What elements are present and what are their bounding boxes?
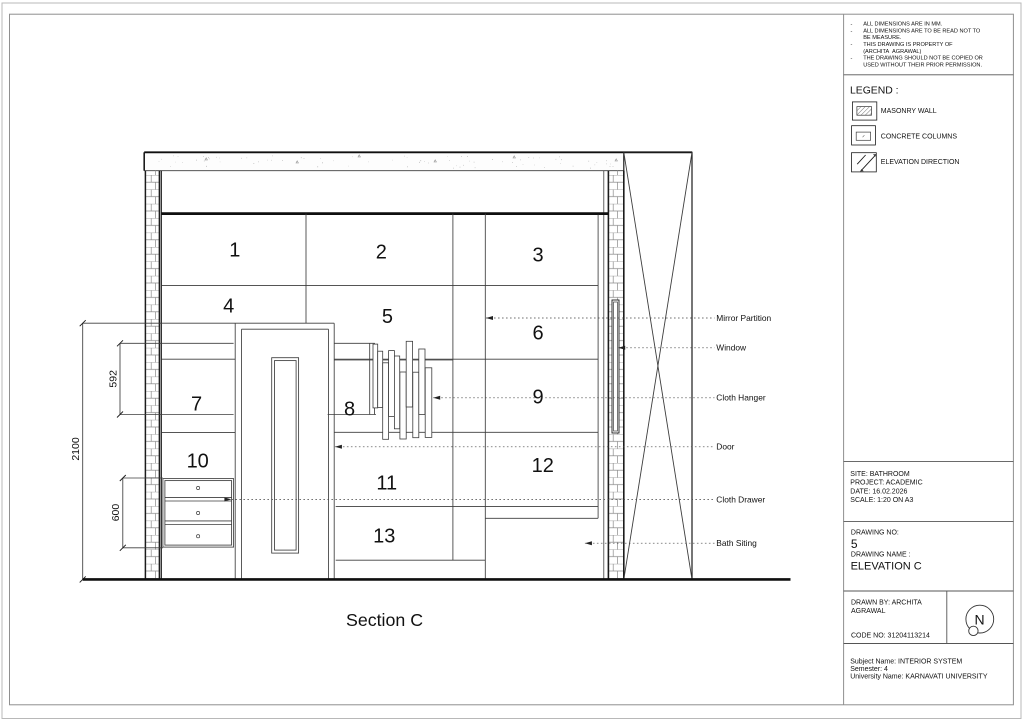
svg-text:DRAWING NO:: DRAWING NO: xyxy=(851,530,899,537)
svg-text:-: - xyxy=(851,21,853,27)
svg-text:CONCRETE COLUMNS: CONCRETE COLUMNS xyxy=(881,133,958,140)
svg-text:10: 10 xyxy=(187,451,209,473)
svg-text:13: 13 xyxy=(373,526,395,548)
svg-text:THIS DRAWING IS PROPERTY OF: THIS DRAWING IS PROPERTY OF xyxy=(863,42,953,48)
svg-text:ALL DIMENSIONS ARE IN MM.: ALL DIMENSIONS ARE IN MM. xyxy=(863,21,942,27)
svg-text:Section C: Section C xyxy=(346,610,423,630)
svg-text:-: - xyxy=(851,28,853,34)
svg-text:DRAWING NAME :: DRAWING NAME : xyxy=(851,551,911,558)
svg-text:-: - xyxy=(851,56,853,62)
svg-text:ALL DIMENSIONS ARE TO BE READ: ALL DIMENSIONS ARE TO BE READ NOT TO xyxy=(863,28,981,34)
svg-text:600: 600 xyxy=(110,504,122,522)
svg-text:Cloth Drawer: Cloth Drawer xyxy=(716,494,765,504)
svg-text:USED WITHOUT THEIR PRIOR PERMI: USED WITHOUT THEIR PRIOR PERMISSION. xyxy=(863,63,982,69)
svg-text:(ARCHITA AGRAWAL): (ARCHITA AGRAWAL) xyxy=(863,49,921,55)
svg-text:3: 3 xyxy=(533,244,544,266)
svg-text:5: 5 xyxy=(382,306,393,328)
svg-text:BE MEASURE.: BE MEASURE. xyxy=(863,35,902,41)
svg-text:Mirror Partition: Mirror Partition xyxy=(716,313,771,323)
svg-text:6: 6 xyxy=(533,323,544,345)
svg-text:CODE NO: 31204113214: CODE NO: 31204113214 xyxy=(851,633,930,640)
svg-text:N: N xyxy=(975,611,985,627)
svg-text:LEGEND :: LEGEND : xyxy=(850,86,899,97)
svg-text:1: 1 xyxy=(229,240,240,262)
svg-text:-: - xyxy=(851,42,853,48)
svg-text:7: 7 xyxy=(191,394,202,416)
svg-text:Bath Siting: Bath Siting xyxy=(716,538,757,548)
svg-text:2: 2 xyxy=(376,242,387,264)
svg-text:Door: Door xyxy=(716,442,734,452)
svg-text:8: 8 xyxy=(344,399,355,421)
svg-text:12: 12 xyxy=(532,455,554,477)
svg-text:Cloth Hanger: Cloth Hanger xyxy=(716,393,766,403)
svg-text:DATE: 16.02.2026: DATE: 16.02.2026 xyxy=(850,488,907,495)
svg-text:SITE: BATHROOM: SITE: BATHROOM xyxy=(850,471,910,478)
svg-text:Semester: 4: Semester: 4 xyxy=(850,666,888,673)
svg-text:4: 4 xyxy=(223,295,234,317)
svg-text:Window: Window xyxy=(716,343,747,353)
svg-text:592: 592 xyxy=(107,370,119,388)
svg-text:2100: 2100 xyxy=(70,437,82,461)
svg-text:AGRAWAL: AGRAWAL xyxy=(851,608,886,615)
svg-text:ELEVATION DIRECTION: ELEVATION DIRECTION xyxy=(881,159,960,166)
svg-text:PROJECT: ACADEMIC: PROJECT: ACADEMIC xyxy=(850,480,922,487)
svg-text:MASONRY WALL: MASONRY WALL xyxy=(881,108,937,115)
svg-text:THE DRAWING SHOULD NOT BE COPI: THE DRAWING SHOULD NOT BE COPIED OR xyxy=(863,56,983,62)
svg-text:University Name: KARNAVATI UNI: University Name: KARNAVATI UNIVERSITY xyxy=(850,674,988,681)
svg-text:11: 11 xyxy=(376,472,397,494)
svg-text:SCALE: 1:20 ON A3: SCALE: 1:20 ON A3 xyxy=(850,497,913,504)
svg-text:Subject Name: INTERIOR SYSTEM: Subject Name: INTERIOR SYSTEM xyxy=(850,659,962,666)
svg-text:5: 5 xyxy=(851,537,858,551)
svg-text:ELEVATION C: ELEVATION C xyxy=(851,561,922,573)
svg-text:DRAWN BY: ARCHITA: DRAWN BY: ARCHITA xyxy=(851,600,922,607)
